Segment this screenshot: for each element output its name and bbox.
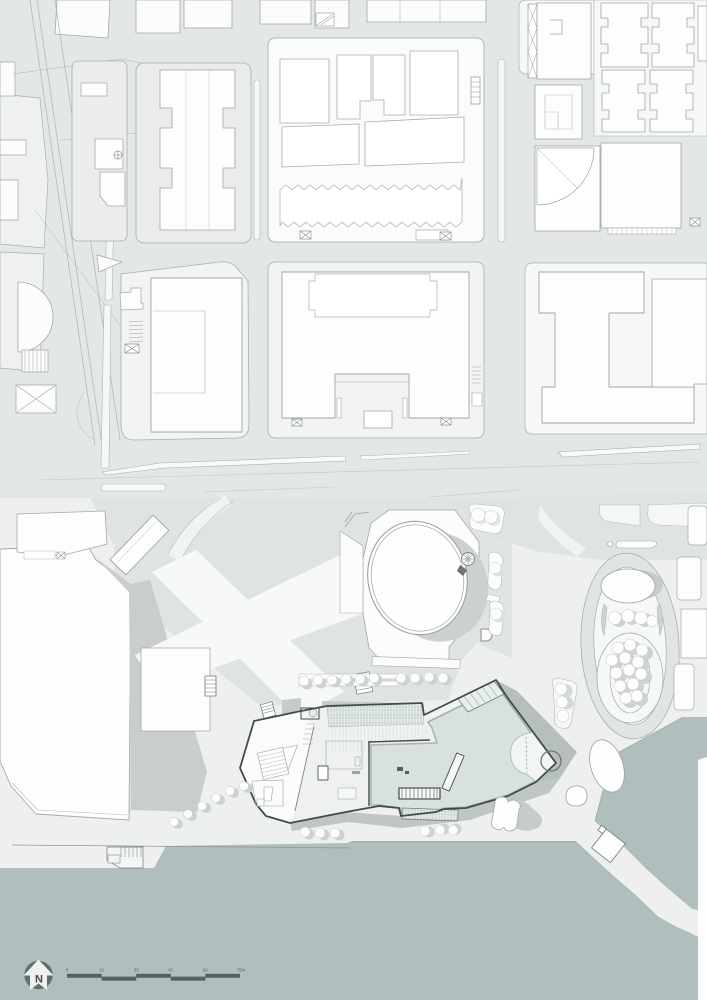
svg-text:30: 30 xyxy=(134,968,139,973)
svg-text:45: 45 xyxy=(168,968,173,973)
svg-text:75m: 75m xyxy=(237,968,246,973)
svg-text:N: N xyxy=(35,974,43,986)
svg-text:15: 15 xyxy=(99,968,104,973)
svg-text:60: 60 xyxy=(203,968,208,973)
